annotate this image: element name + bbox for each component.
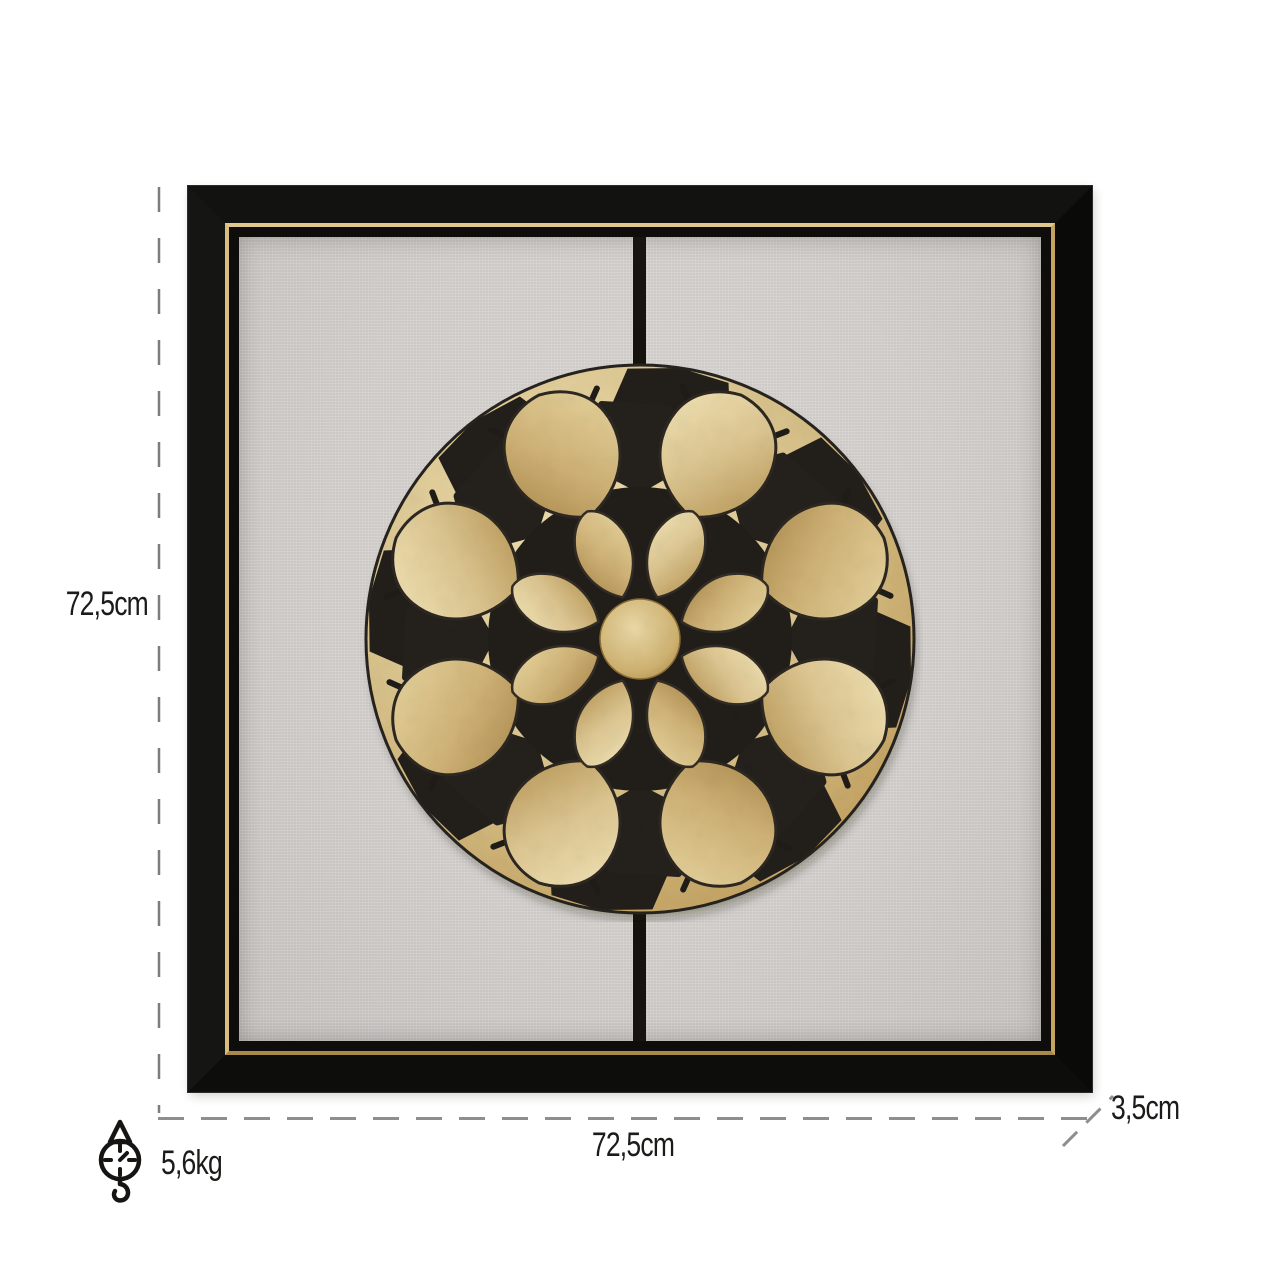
frame-gold-trim (225, 223, 1055, 1055)
product-dimension-diagram: 72,5cm 72,5cm 3,5cm 5,6kg (0, 0, 1280, 1280)
depth-dimension-line (1063, 1096, 1113, 1146)
width-dimension-label: 72,5cm (555, 1128, 711, 1164)
weight-label: 5,6kg (161, 1146, 222, 1182)
picture-frame (188, 186, 1092, 1092)
canvas-panels (239, 237, 1041, 1041)
frame-inner-fillet (229, 227, 1051, 1051)
gold-leaf-texture (366, 365, 914, 913)
height-dimension-label: 72,5cm (47, 587, 148, 623)
weight-scale-icon (94, 1118, 146, 1210)
depth-dimension-label: 3,5cm (1111, 1091, 1179, 1127)
mosaic-medallion-artwork (357, 356, 923, 922)
